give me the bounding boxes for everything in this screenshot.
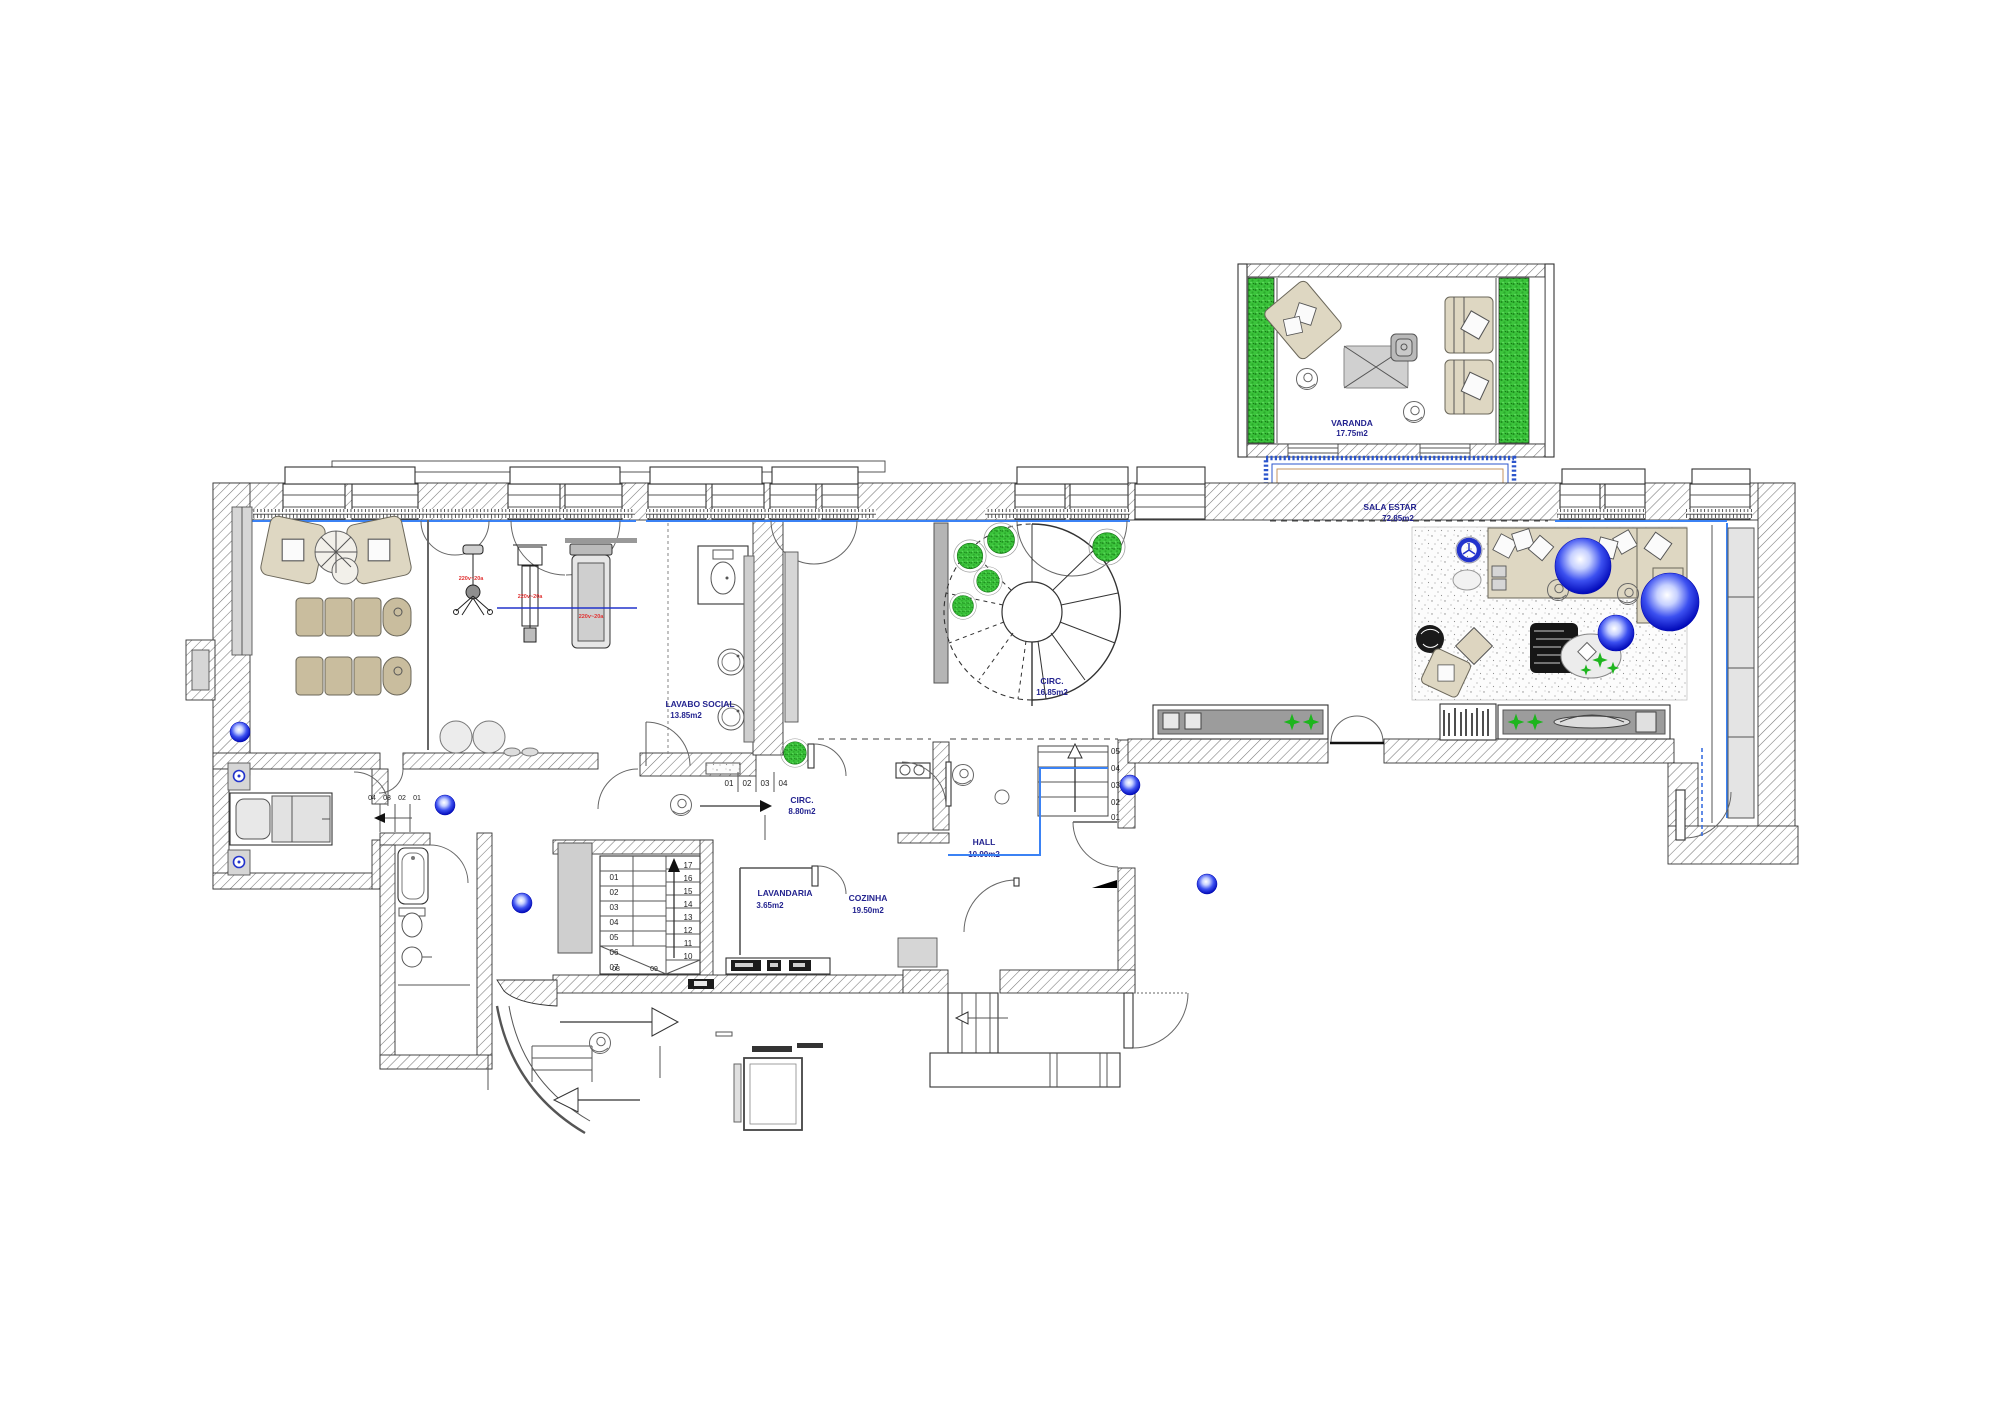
svg-text:09: 09 — [650, 966, 658, 973]
decor-bowl — [1554, 716, 1630, 728]
massage-table — [296, 657, 411, 695]
svg-text:04: 04 — [1111, 764, 1120, 773]
person-figure — [953, 765, 974, 786]
svg-text:11: 11 — [684, 939, 693, 948]
appliance-row — [726, 958, 830, 974]
wall-rail — [565, 538, 637, 543]
room-area-varanda: 17.75m2 — [1336, 429, 1368, 438]
bookshelf — [1440, 704, 1496, 740]
svg-text:03: 03 — [610, 903, 619, 912]
sideboard — [1498, 705, 1670, 739]
nightstand — [228, 763, 250, 790]
closet — [785, 552, 798, 722]
room-label-circ: CIRC. — [1040, 676, 1063, 686]
radiator-band — [1557, 509, 1645, 518]
spiral-staircase: CIRC. 16.85m2 — [934, 523, 1125, 706]
ceiling-sphere — [512, 893, 532, 913]
svg-text:06: 06 — [610, 948, 619, 957]
svg-text:15: 15 — [684, 887, 693, 896]
lounge-chair — [1445, 360, 1493, 414]
outdoor-table — [716, 1032, 823, 1130]
room-area-lavabo: 13.85m2 — [670, 711, 702, 720]
planter-right — [1499, 278, 1529, 443]
room-label-varanda: VARANDA — [1331, 418, 1373, 428]
svg-text:16: 16 — [684, 874, 693, 883]
decor-sphere — [1598, 615, 1634, 651]
toilet — [399, 908, 425, 937]
floor-plan: VARANDA 17.75m2 — [0, 0, 2000, 1414]
svg-text:17: 17 — [684, 861, 693, 870]
door — [1073, 822, 1118, 888]
wall-fin — [934, 523, 948, 683]
svg-text:05: 05 — [610, 933, 619, 942]
entrance-exterior — [488, 980, 1188, 1133]
pouf — [1453, 570, 1481, 590]
svg-text:05: 05 — [1111, 747, 1120, 756]
svg-text:10: 10 — [684, 952, 693, 961]
svg-text:03: 03 — [1111, 781, 1120, 790]
veranda: VARANDA 17.75m2 — [1238, 264, 1554, 457]
svg-text:02: 02 — [1111, 798, 1120, 807]
plant — [781, 739, 810, 768]
svg-text:04: 04 — [610, 918, 619, 927]
radiator-band — [985, 509, 1130, 518]
magazine-ring — [1456, 537, 1482, 563]
direction-arrow — [652, 1008, 678, 1036]
exercise-ball — [440, 721, 472, 753]
radiator-band — [253, 509, 635, 518]
window — [1420, 444, 1470, 457]
room-label-lavandaria: LAVANDARIA — [758, 888, 813, 898]
vanity-counter — [744, 556, 754, 742]
radiator-band — [1686, 509, 1752, 518]
pillow — [236, 799, 270, 839]
lounge-chair — [1445, 297, 1493, 353]
decor-sphere — [1555, 538, 1611, 594]
room-area-circ: 16.85m2 — [1036, 688, 1068, 697]
power-label: 220v~20a — [459, 576, 485, 582]
ceiling-sphere — [435, 795, 455, 815]
direction-arrow — [760, 800, 772, 812]
sink — [718, 649, 744, 675]
svg-text:04: 04 — [779, 779, 788, 788]
sideboard — [1153, 705, 1328, 739]
double-door — [1330, 716, 1384, 743]
exterior-steps — [930, 993, 1120, 1087]
ceiling-sphere — [1197, 874, 1217, 894]
svg-text:14: 14 — [684, 900, 693, 909]
main-staircase: 01 02 03 04 05 06 07 17 16 15 14 13 12 1… — [558, 843, 700, 974]
room-label-hall: HALL — [973, 837, 996, 847]
room-label-cozinha: COZINHA — [849, 893, 888, 903]
massage-table — [296, 598, 411, 636]
room-area-sala: 72.85m2 — [1382, 514, 1414, 523]
person-figure — [671, 795, 692, 816]
power-label: 220v~20a — [518, 594, 544, 600]
hall-steps: 05 04 03 02 01 — [1038, 744, 1120, 822]
svg-text:02: 02 — [610, 888, 619, 897]
svg-text:02: 02 — [743, 779, 752, 788]
treadmill — [570, 544, 612, 648]
sala-estar: SALA ESTAR 72.85m2 — [1153, 502, 1754, 840]
exercise-ball — [473, 721, 505, 753]
planter-left — [1248, 278, 1274, 443]
plant — [1089, 529, 1125, 565]
room-area-circ-small: 8.80m2 — [788, 807, 816, 816]
bathtub — [398, 848, 428, 904]
ceiling-sphere — [1120, 775, 1140, 795]
toilet — [698, 546, 748, 604]
ball — [995, 790, 1009, 804]
threshold-wedge — [1092, 880, 1117, 888]
round-table — [315, 531, 358, 584]
door — [1124, 993, 1188, 1048]
direction-arrow — [554, 1088, 578, 1112]
window — [1135, 484, 1205, 519]
decor-sphere — [1641, 573, 1699, 631]
svg-text:01: 01 — [1111, 813, 1120, 822]
power-label: 220v~20a — [579, 614, 605, 620]
door-mat — [706, 763, 740, 774]
svg-text:01: 01 — [413, 795, 421, 802]
room-area-lavandaria: 3.65m2 — [756, 901, 784, 910]
svg-text:13: 13 — [684, 913, 693, 922]
hall: HALL 10.90m2 05 04 03 02 01 — [948, 744, 1217, 894]
svg-text:12: 12 — [684, 926, 693, 935]
window — [1288, 444, 1338, 457]
room-label-lavabo: LAVABO SOCIAL — [665, 699, 734, 709]
bathroom — [398, 795, 532, 985]
plant — [974, 567, 1003, 596]
svg-text:01: 01 — [725, 779, 734, 788]
room-label-sala: SALA ESTAR — [1363, 502, 1416, 512]
plant — [954, 540, 986, 572]
lavabo-social: LAVABO SOCIAL 13.85m2 — [646, 523, 846, 776]
radiator-band — [646, 509, 876, 518]
svg-text:03: 03 — [761, 779, 770, 788]
svg-text:04: 04 — [368, 795, 376, 802]
plant — [984, 523, 1018, 557]
kitchen-counter — [898, 938, 937, 967]
lavandaria: LAVANDARIA 3.65m2 — [726, 866, 846, 974]
bed — [230, 793, 332, 845]
ceiling-sphere — [230, 722, 250, 742]
sink — [402, 947, 432, 967]
plant — [950, 593, 977, 620]
wall-closet — [1712, 525, 1754, 823]
side-table — [1391, 334, 1417, 361]
circ-small: 01 02 03 04 CIRC. 8.80m2 — [671, 772, 817, 840]
shaft — [558, 843, 592, 953]
room-label-circ-small: CIRC. — [790, 795, 813, 805]
kitchen-sink-unit — [896, 763, 930, 778]
svg-text:08: 08 — [612, 966, 620, 973]
room-area-cozinha: 19.50m2 — [852, 906, 884, 915]
svg-text:01: 01 — [610, 873, 619, 882]
veranda-top-wall — [1238, 264, 1554, 277]
svg-text:02: 02 — [398, 795, 406, 802]
person-figure — [590, 1033, 611, 1054]
nightstand — [228, 850, 250, 875]
